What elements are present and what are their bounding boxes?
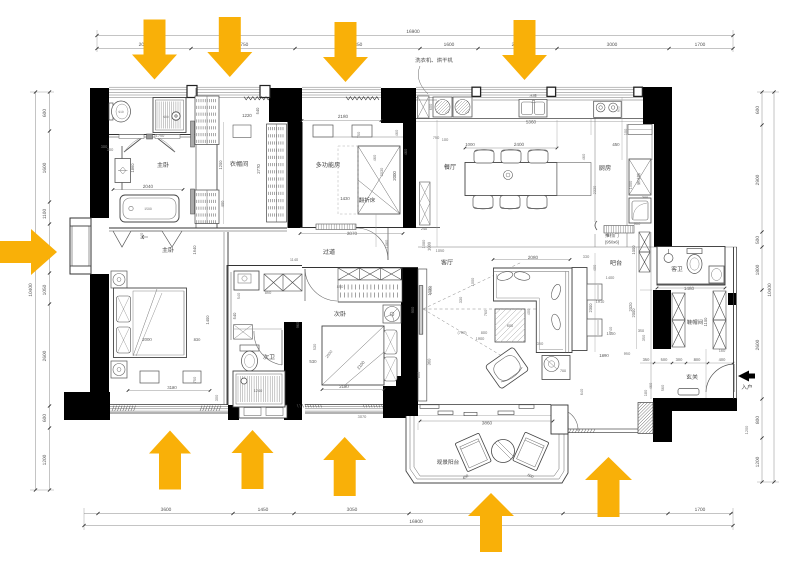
svg-text:1200: 1200 <box>42 454 48 465</box>
svg-text:5360: 5360 <box>526 120 537 125</box>
svg-text:1750: 1750 <box>156 133 165 138</box>
svg-text:1100: 1100 <box>42 209 48 220</box>
svg-text:2000: 2000 <box>631 308 636 318</box>
svg-text:2770: 2770 <box>256 164 261 174</box>
svg-text:2180: 2180 <box>339 384 349 389</box>
svg-text:600: 600 <box>507 324 513 328</box>
svg-text:1080: 1080 <box>427 241 432 251</box>
svg-text:600: 600 <box>634 221 641 226</box>
svg-text:160: 160 <box>719 348 726 353</box>
svg-text:2400: 2400 <box>514 142 525 147</box>
svg-text:500: 500 <box>661 357 668 362</box>
svg-text:1080: 1080 <box>421 239 426 248</box>
svg-text:2040: 2040 <box>143 184 154 189</box>
svg-text:翻折床: 翻折床 <box>359 197 376 204</box>
svg-text:1860: 1860 <box>130 163 135 173</box>
svg-text:700: 700 <box>560 369 566 373</box>
svg-text:2030: 2030 <box>379 167 384 176</box>
svg-text:嵌冰箱: 嵌冰箱 <box>636 173 641 185</box>
svg-text:2330: 2330 <box>592 185 597 194</box>
svg-text:330: 330 <box>458 296 463 303</box>
svg-text:(790): (790) <box>457 330 467 335</box>
svg-text:3600: 3600 <box>161 507 172 513</box>
svg-text:850: 850 <box>265 290 272 295</box>
svg-text:750: 750 <box>433 135 440 140</box>
svg-text:640: 640 <box>579 388 584 395</box>
svg-text:2900: 2900 <box>755 174 761 185</box>
svg-text:2000: 2000 <box>392 171 397 181</box>
svg-text:入户: 入户 <box>741 384 752 391</box>
svg-text:750: 750 <box>192 376 197 383</box>
svg-text:300: 300 <box>214 394 219 401</box>
svg-text:540: 540 <box>255 107 260 114</box>
svg-text:吧台: 吧台 <box>610 259 622 267</box>
svg-text:2000: 2000 <box>142 337 152 342</box>
svg-text:900: 900 <box>163 115 169 119</box>
svg-text:1910: 1910 <box>596 299 605 304</box>
svg-text:1220: 1220 <box>242 113 252 118</box>
svg-text:1450: 1450 <box>258 507 269 513</box>
svg-text:560: 560 <box>660 384 665 391</box>
svg-text:500: 500 <box>755 236 761 244</box>
svg-text:540: 540 <box>232 312 237 319</box>
svg-text:客厅: 客厅 <box>441 259 453 267</box>
svg-text:100: 100 <box>442 137 449 142</box>
svg-text:1400: 1400 <box>428 285 433 294</box>
svg-text:1100: 1100 <box>703 317 708 326</box>
svg-text:910: 910 <box>118 110 124 114</box>
svg-text:2080: 2080 <box>528 255 539 260</box>
svg-text:[950x6]: [950x6] <box>605 240 619 245</box>
svg-text:1200: 1200 <box>218 160 223 170</box>
svg-text:推拉门: 推拉门 <box>605 233 619 238</box>
svg-text:350: 350 <box>537 341 544 346</box>
svg-text:观景阳台: 观景阳台 <box>437 459 460 466</box>
svg-text:1600: 1600 <box>444 42 455 48</box>
svg-text:100: 100 <box>623 128 628 135</box>
svg-text:830: 830 <box>194 337 201 342</box>
svg-text:1060: 1060 <box>384 239 389 248</box>
svg-text:800: 800 <box>481 330 488 335</box>
svg-text:460: 460 <box>581 153 586 160</box>
svg-text:3070: 3070 <box>358 414 367 419</box>
svg-text:350: 350 <box>641 334 646 341</box>
svg-text:3050: 3050 <box>347 507 358 513</box>
svg-text:3860: 3860 <box>482 421 493 426</box>
svg-text:600: 600 <box>416 371 421 378</box>
svg-text:460: 460 <box>394 129 399 136</box>
svg-text:350: 350 <box>643 357 650 362</box>
svg-text:过道: 过道 <box>323 248 335 256</box>
svg-text:16900: 16900 <box>409 519 423 525</box>
svg-text:衣帽间: 衣帽间 <box>230 160 249 168</box>
svg-text:3180: 3180 <box>167 385 177 390</box>
svg-text:1050: 1050 <box>436 248 445 253</box>
svg-text:400: 400 <box>220 200 225 207</box>
svg-text:2300: 2300 <box>588 303 593 313</box>
svg-text:1800: 1800 <box>755 264 761 275</box>
svg-text:600: 600 <box>755 106 761 114</box>
svg-text:玄关: 玄关 <box>686 373 698 381</box>
svg-text:600: 600 <box>42 414 48 422</box>
svg-text:750: 750 <box>356 131 361 138</box>
svg-text:厨房: 厨房 <box>599 164 611 172</box>
svg-text:400: 400 <box>526 308 531 315</box>
svg-text:300: 300 <box>676 357 683 362</box>
svg-text:1640: 1640 <box>192 245 197 255</box>
svg-text:主卧: 主卧 <box>157 161 169 169</box>
svg-text:2600: 2600 <box>42 350 48 361</box>
svg-text:600: 600 <box>617 106 621 112</box>
svg-text:1500: 1500 <box>144 207 152 211</box>
svg-text:740: 740 <box>608 326 613 333</box>
svg-text:1700: 1700 <box>695 507 706 513</box>
svg-text:360: 360 <box>427 358 432 365</box>
svg-text:餐厅: 餐厅 <box>444 163 456 171</box>
svg-text:460: 460 <box>372 154 377 161</box>
svg-text:600: 600 <box>42 109 48 117</box>
svg-text:2180: 2180 <box>338 114 349 119</box>
svg-text:900: 900 <box>410 306 415 313</box>
svg-text:400: 400 <box>592 264 597 271</box>
svg-text:1600: 1600 <box>42 162 48 173</box>
svg-text:多功能房: 多功能房 <box>316 161 341 169</box>
svg-text:1480: 1480 <box>684 286 695 291</box>
svg-text:3000: 3000 <box>607 42 618 48</box>
svg-text:1890: 1890 <box>599 353 609 358</box>
svg-text:460: 460 <box>648 382 653 389</box>
svg-text:1200: 1200 <box>755 456 761 467</box>
svg-text:330: 330 <box>583 254 590 259</box>
svg-text:1900: 1900 <box>476 336 485 341</box>
svg-text:850: 850 <box>337 284 344 289</box>
svg-text:次卧: 次卧 <box>334 310 346 318</box>
svg-text:800: 800 <box>755 416 761 424</box>
svg-text:16900: 16900 <box>406 29 420 35</box>
svg-text:350: 350 <box>638 329 644 333</box>
svg-text:1700: 1700 <box>695 42 706 48</box>
svg-text:1200: 1200 <box>744 425 749 434</box>
svg-text:450: 450 <box>612 142 620 147</box>
svg-text:1000: 1000 <box>631 245 636 255</box>
svg-text:洗衣机、烘干机: 洗衣机、烘干机 <box>415 57 453 64</box>
svg-text:鞋帽间: 鞋帽间 <box>687 319 703 326</box>
svg-text:460: 460 <box>403 148 408 155</box>
svg-text:400: 400 <box>719 357 726 362</box>
svg-text:1000: 1000 <box>465 142 475 147</box>
svg-text:1430: 1430 <box>340 196 350 201</box>
svg-text:2600: 2600 <box>755 339 761 350</box>
svg-text:530: 530 <box>309 359 317 364</box>
svg-text:760: 760 <box>483 309 488 316</box>
svg-text:600: 600 <box>428 103 433 110</box>
svg-text:240: 240 <box>421 227 427 231</box>
svg-text:960: 960 <box>295 321 300 328</box>
svg-text:640: 640 <box>139 232 144 239</box>
svg-text:10400: 10400 <box>767 283 773 297</box>
svg-text:800: 800 <box>694 357 701 362</box>
svg-text:1400: 1400 <box>606 275 615 280</box>
svg-text:主卧: 主卧 <box>162 246 174 254</box>
svg-text:1400: 1400 <box>205 315 210 325</box>
svg-text:1050: 1050 <box>42 284 48 295</box>
svg-text:1240: 1240 <box>254 389 262 393</box>
svg-text:530: 530 <box>312 343 317 350</box>
svg-text:950: 950 <box>624 351 631 356</box>
svg-text:300: 300 <box>107 147 114 152</box>
svg-text:1140: 1140 <box>290 257 299 262</box>
svg-text:1000: 1000 <box>628 180 633 189</box>
svg-text:客卫: 客卫 <box>671 266 683 273</box>
svg-text:10400: 10400 <box>28 283 34 297</box>
svg-text:水槽: 水槽 <box>529 93 537 98</box>
svg-text:1000: 1000 <box>470 277 475 286</box>
svg-text:540: 540 <box>236 292 241 299</box>
